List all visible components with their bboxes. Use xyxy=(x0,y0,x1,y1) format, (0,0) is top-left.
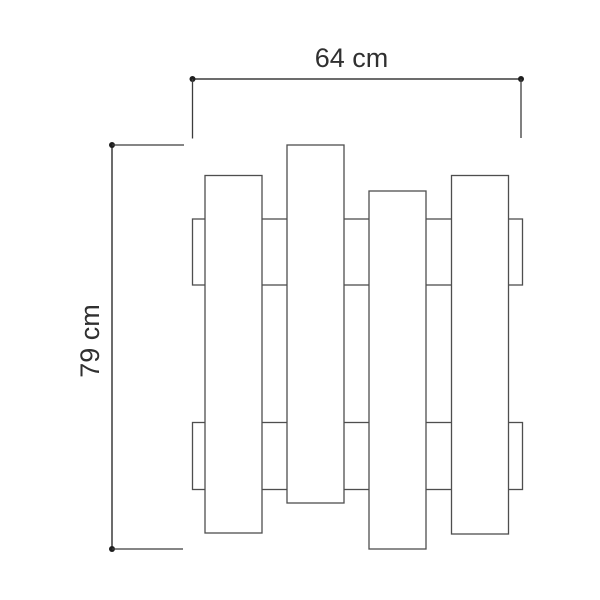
svg-text:79 cm: 79 cm xyxy=(75,304,105,378)
svg-text:64 cm: 64 cm xyxy=(315,43,389,73)
